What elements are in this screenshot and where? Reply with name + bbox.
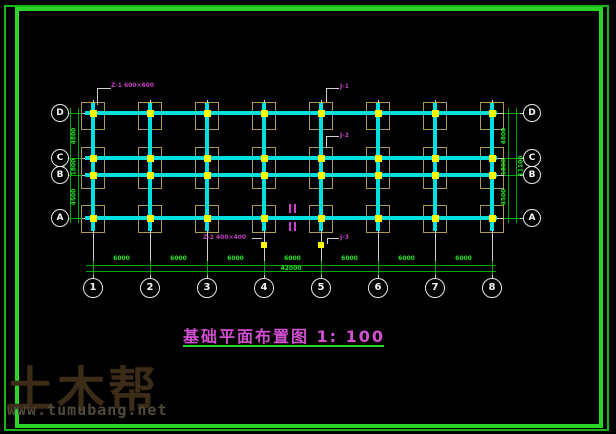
- column-marker: [375, 110, 382, 117]
- grid-bubble-row-B-right: B: [523, 166, 541, 184]
- small-column-marker: [318, 242, 324, 248]
- column-marker: [375, 155, 382, 162]
- grid-bubble-column-8: 8: [482, 278, 502, 298]
- footing-callout-j3: J-3: [340, 234, 349, 241]
- column-marker: [90, 172, 97, 179]
- column-marker: [204, 215, 211, 222]
- callout-leader-line: [327, 238, 339, 239]
- dimension-tick: [264, 261, 265, 275]
- column-marker: [147, 215, 154, 222]
- callout-leader-line: [97, 88, 98, 105]
- dimension-value: 4500: [71, 188, 78, 205]
- column-marker: [318, 215, 325, 222]
- dimension-value: 6000: [284, 255, 301, 262]
- dimension-tick: [492, 261, 493, 275]
- callout-leader-line: [326, 136, 327, 148]
- column-marker: [204, 172, 211, 179]
- dimension-value: 6000: [341, 255, 358, 262]
- callout-leader-line: [326, 136, 339, 137]
- dimension-value: 6000: [398, 255, 415, 262]
- column-marker: [147, 155, 154, 162]
- dimension-tick: [321, 261, 322, 275]
- column-type-callout-z1: Z-1 600×600: [111, 82, 154, 89]
- dimension-value: 4800: [71, 127, 78, 144]
- column-marker: [90, 110, 97, 117]
- watermark-url: www.tumubang.net: [7, 401, 168, 419]
- dimension-tick: [207, 261, 208, 275]
- grid-bubble-row-D-right: D: [523, 104, 541, 122]
- dimension-line: [508, 108, 509, 223]
- dimension-value: 6000: [170, 255, 187, 262]
- foundation-beam-vertical: [433, 103, 437, 231]
- footing-callout-j2: J-2: [340, 132, 349, 139]
- drawing-title: 基础平面布置图 1: 100: [174, 323, 394, 347]
- dimension-tick: [93, 261, 94, 275]
- column-marker: [432, 215, 439, 222]
- dimension-total-value: 42000: [281, 265, 302, 272]
- grid-bubble-column-7: 7: [425, 278, 445, 298]
- dimension-value: 4800: [501, 127, 508, 144]
- foundation-beam-vertical: [205, 103, 209, 231]
- section-cut-mark: [294, 222, 296, 231]
- column-marker: [318, 110, 325, 117]
- dimension-value: 4500: [501, 188, 508, 205]
- column-marker: [375, 172, 382, 179]
- grid-bubble-column-3: 3: [197, 278, 217, 298]
- column-marker: [489, 215, 496, 222]
- grid-bubble-row-C-right: C: [523, 149, 541, 167]
- section-cut-mark: [294, 204, 296, 213]
- grid-bubble-column-2: 2: [140, 278, 160, 298]
- drawing-title-underline: [183, 345, 384, 347]
- foundation-beam-vertical: [91, 103, 95, 231]
- grid-bubble-column-5: 5: [311, 278, 331, 298]
- column-marker: [489, 155, 496, 162]
- column-marker: [204, 155, 211, 162]
- foundation-beam-vertical: [262, 103, 266, 231]
- callout-leader-line: [326, 88, 339, 89]
- column-marker: [261, 172, 268, 179]
- dimension-tick: [504, 113, 520, 114]
- callout-leader-line: [327, 238, 328, 244]
- foundation-beam-vertical: [490, 103, 494, 231]
- grid-bubble-column-1: 1: [83, 278, 103, 298]
- column-marker: [261, 215, 268, 222]
- grid-bubble-column-4: 4: [254, 278, 274, 298]
- column-marker: [489, 110, 496, 117]
- grid-bubble-row-A-left: A: [51, 209, 69, 227]
- column-marker: [318, 155, 325, 162]
- column-marker: [147, 172, 154, 179]
- column-marker: [261, 155, 268, 162]
- dimension-tick: [378, 261, 379, 275]
- column-marker: [432, 172, 439, 179]
- section-cut-mark: [289, 204, 291, 213]
- column-marker: [147, 110, 154, 117]
- column-marker: [90, 215, 97, 222]
- dimension-value: 6000: [455, 255, 472, 262]
- section-cut-mark: [289, 222, 291, 231]
- foundation-beam-vertical: [319, 103, 323, 231]
- grid-bubble-row-B-left: B: [51, 166, 69, 184]
- column-marker: [318, 172, 325, 179]
- dimension-value: 6000: [113, 255, 130, 262]
- cad-sheet: 6000600060006000600060006000420004800480…: [0, 0, 616, 434]
- dimension-tick: [504, 218, 520, 219]
- column-marker: [489, 172, 496, 179]
- dimension-value: 1800: [501, 158, 508, 175]
- column-marker: [90, 155, 97, 162]
- dimension-value: 6000: [227, 255, 244, 262]
- column-marker: [432, 110, 439, 117]
- column-marker: [204, 110, 211, 117]
- column-type-callout-z2: Z-2 400×400: [203, 234, 246, 241]
- grid-bubble-row-C-left: C: [51, 149, 69, 167]
- grid-bubble-row-A-right: A: [523, 209, 541, 227]
- dimension-tick: [150, 261, 151, 275]
- grid-bubble-row-D-left: D: [51, 104, 69, 122]
- callout-leader-line: [97, 88, 111, 89]
- foundation-beam-vertical: [148, 103, 152, 231]
- dimension-tick: [435, 261, 436, 275]
- dimension-line: [78, 108, 79, 223]
- column-marker: [375, 215, 382, 222]
- footing-callout-j1: J-1: [340, 83, 349, 90]
- dimension-value: 1800: [71, 158, 78, 175]
- foundation-beam-vertical: [376, 103, 380, 231]
- column-marker: [432, 155, 439, 162]
- column-marker: [261, 110, 268, 117]
- callout-leader-line: [252, 238, 262, 239]
- grid-bubble-column-6: 6: [368, 278, 388, 298]
- small-column-marker: [261, 242, 267, 248]
- callout-leader-line: [326, 88, 327, 102]
